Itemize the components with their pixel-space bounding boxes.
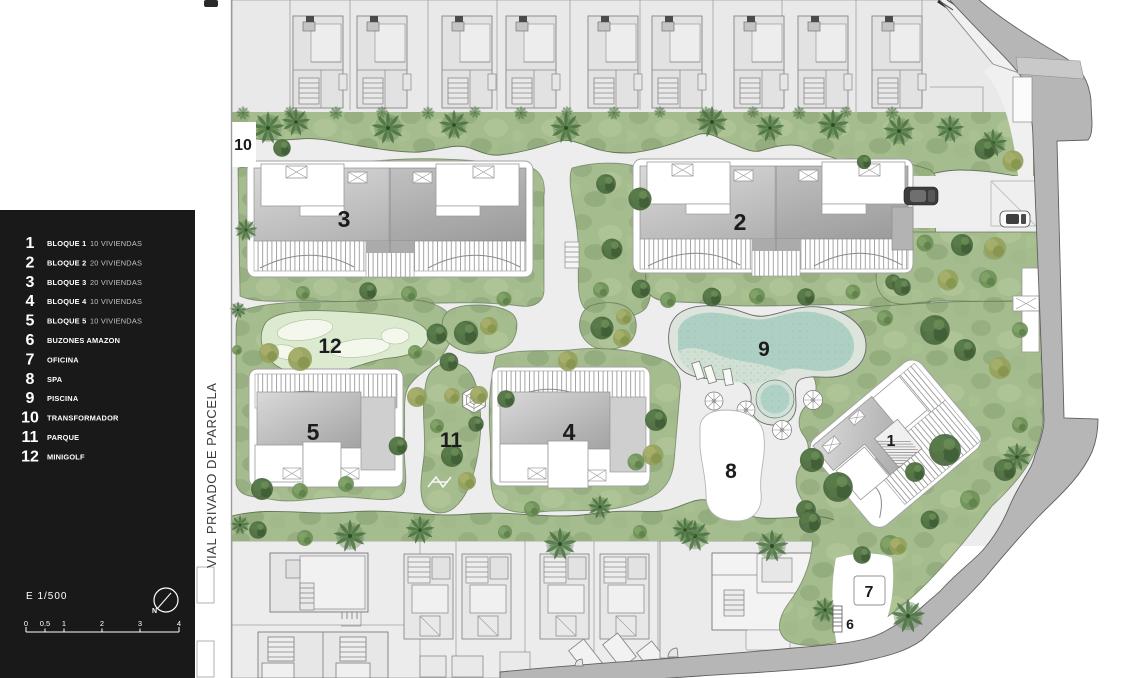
svg-text:6: 6 <box>846 616 854 632</box>
svg-text:10 VIVIENDAS: 10 VIVIENDAS <box>90 239 142 248</box>
svg-text:BUZONES AMAZON: BUZONES AMAZON <box>47 336 120 345</box>
svg-text:MINIGOLF: MINIGOLF <box>47 452 85 461</box>
svg-text:BLOQUE 3: BLOQUE 3 <box>47 278 86 287</box>
svg-text:8: 8 <box>725 460 737 483</box>
svg-text:N: N <box>152 608 157 615</box>
svg-text:6: 6 <box>26 332 35 349</box>
svg-text:0.5: 0.5 <box>40 619 50 628</box>
svg-text:10 VIVIENDAS: 10 VIVIENDAS <box>90 297 142 306</box>
svg-text:TRANSFORMADOR: TRANSFORMADOR <box>47 414 119 423</box>
svg-text:3: 3 <box>138 619 142 628</box>
svg-text:7: 7 <box>865 584 874 601</box>
svg-text:10 VIVIENDAS: 10 VIVIENDAS <box>90 317 142 326</box>
svg-text:1: 1 <box>62 619 66 628</box>
svg-text:1: 1 <box>26 235 35 252</box>
svg-text:BLOQUE 5: BLOQUE 5 <box>47 317 86 326</box>
svg-text:OFICINA: OFICINA <box>47 355 79 364</box>
svg-text:11: 11 <box>22 429 39 446</box>
svg-text:9: 9 <box>26 390 35 407</box>
svg-text:2: 2 <box>100 619 104 628</box>
svg-text:10: 10 <box>21 410 39 427</box>
svg-text:2: 2 <box>734 209 747 235</box>
svg-text:11: 11 <box>440 429 463 452</box>
svg-text:0: 0 <box>24 619 28 628</box>
svg-text:2: 2 <box>26 254 35 271</box>
svg-text:12: 12 <box>318 335 341 358</box>
svg-text:PISCINA: PISCINA <box>47 394 79 403</box>
svg-text:E 1/500: E 1/500 <box>26 591 67 602</box>
svg-text:9: 9 <box>758 338 770 361</box>
svg-text:PARQUE: PARQUE <box>47 433 79 442</box>
svg-text:SPA: SPA <box>47 375 63 384</box>
svg-text:20 VIVIENDAS: 20 VIVIENDAS <box>90 258 142 267</box>
svg-text:5: 5 <box>307 419 320 445</box>
svg-text:4: 4 <box>26 293 35 310</box>
svg-text:12: 12 <box>21 448 39 465</box>
svg-text:1: 1 <box>887 433 896 450</box>
svg-text:20 VIVIENDAS: 20 VIVIENDAS <box>90 278 142 287</box>
svg-text:8: 8 <box>26 371 35 388</box>
svg-text:4: 4 <box>177 619 181 628</box>
svg-text:VIAL PRIVADO DE PARCELA: VIAL PRIVADO DE PARCELA <box>204 383 219 568</box>
svg-text:7: 7 <box>26 351 35 368</box>
svg-text:BLOQUE 4: BLOQUE 4 <box>47 297 87 306</box>
svg-text:3: 3 <box>338 206 351 232</box>
svg-text:BLOQUE 1: BLOQUE 1 <box>47 239 86 248</box>
svg-text:10: 10 <box>234 137 252 154</box>
svg-text:4: 4 <box>563 419 576 445</box>
svg-text:3: 3 <box>26 274 35 291</box>
svg-text:BLOQUE 2: BLOQUE 2 <box>47 258 86 267</box>
svg-text:5: 5 <box>26 313 35 330</box>
